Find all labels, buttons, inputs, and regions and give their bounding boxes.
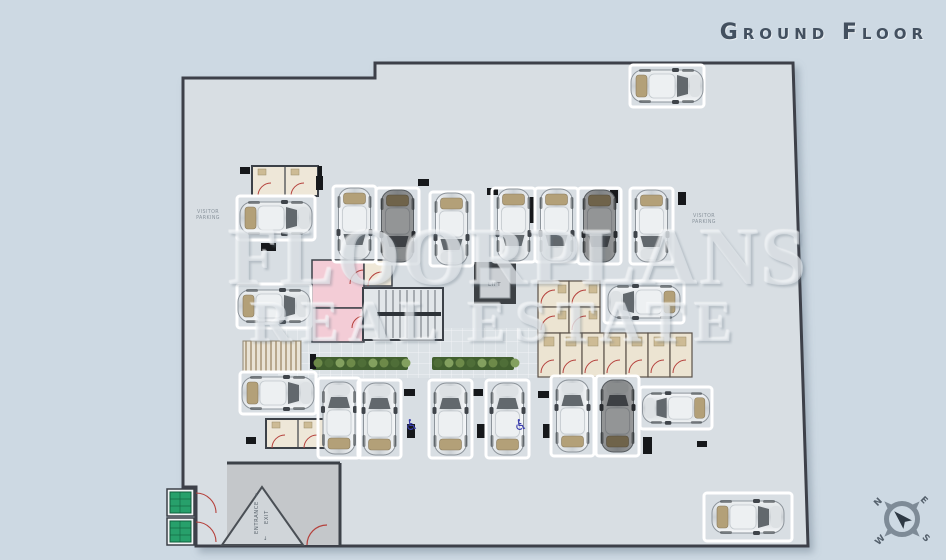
storage-unit	[538, 333, 560, 377]
shrub	[478, 359, 487, 368]
parking-spot	[237, 284, 311, 328]
compass-rose: N E W S	[872, 495, 931, 548]
visitor-parking-label: PARKING	[692, 219, 716, 225]
floor-plan-drawing: ↑ ENTRANCE EXIT ↓	[0, 0, 946, 560]
parking-spot	[376, 188, 419, 264]
shrub	[456, 359, 465, 368]
lift-label: LIFT	[488, 282, 501, 288]
parking-spot	[630, 188, 673, 264]
shrub	[347, 359, 356, 368]
car	[634, 190, 670, 262]
car	[337, 188, 373, 260]
storage-unit	[626, 333, 648, 377]
compass-s: S	[920, 533, 932, 545]
page-title: Ground Floor	[720, 20, 928, 45]
visitor-parking-label: VISITOR	[197, 209, 219, 215]
storage-unit	[538, 281, 569, 307]
shrub	[489, 359, 498, 368]
compass-e: E	[918, 495, 929, 506]
car	[496, 189, 532, 261]
parking-spot	[240, 372, 316, 414]
car	[434, 193, 470, 265]
shrub	[434, 359, 443, 368]
storage-unit	[582, 333, 604, 377]
shrub	[511, 359, 520, 368]
ramp-hatch	[243, 341, 301, 371]
shrub	[325, 359, 334, 368]
arrow-down-icon: ↓	[263, 536, 268, 542]
car	[539, 189, 575, 261]
storage-unit	[569, 281, 600, 307]
parking-spot	[535, 188, 578, 262]
floor-plan-page: Ground Floor FLOORPLANS REAL ESTATE	[0, 0, 946, 560]
car	[240, 200, 312, 236]
shrub	[314, 359, 323, 368]
car	[600, 380, 636, 452]
shrub	[402, 359, 411, 368]
storage-unit	[560, 333, 582, 377]
car	[242, 375, 314, 411]
shrub	[467, 359, 476, 368]
elevator: LIFT	[474, 262, 516, 304]
car	[362, 383, 398, 455]
storage-unit	[604, 333, 626, 377]
parking-spot	[430, 192, 473, 266]
car	[712, 499, 784, 535]
shrub	[369, 359, 378, 368]
car	[380, 190, 416, 262]
car	[555, 380, 591, 452]
car	[631, 68, 703, 104]
wheelchair-icon: ♿	[405, 416, 418, 434]
staircase	[363, 288, 443, 340]
visitor-parking-label: VISITOR	[693, 213, 715, 219]
car	[582, 190, 618, 262]
parking-spot	[630, 65, 704, 107]
parking-spot	[578, 188, 621, 264]
shrub	[500, 359, 509, 368]
pink-room	[312, 260, 364, 308]
storage-unit	[569, 307, 600, 333]
parking-spot	[492, 188, 535, 262]
storage-unit	[648, 333, 670, 377]
parking-spot	[640, 387, 712, 429]
parking-spot	[551, 376, 594, 456]
parking-spot	[237, 196, 315, 240]
car	[321, 382, 357, 454]
parking-spot	[318, 378, 360, 458]
car	[643, 391, 710, 424]
toilets-top	[240, 166, 322, 196]
car	[238, 288, 310, 324]
parking-spot	[604, 281, 684, 323]
storage-unit	[670, 333, 692, 377]
storage-unit	[538, 307, 569, 333]
pink-room	[312, 308, 364, 342]
shrub	[391, 359, 400, 368]
entrance-ramp: ↑ ENTRANCE EXIT ↓	[222, 463, 340, 546]
shrub	[336, 359, 345, 368]
visitor-parking-label: PARKING	[196, 215, 220, 221]
shrub	[358, 359, 367, 368]
parking-spot	[596, 376, 639, 456]
shrub	[380, 359, 389, 368]
shrub	[445, 359, 454, 368]
parking-spot	[429, 380, 472, 458]
compass-n: N	[872, 496, 884, 508]
parking-spot	[333, 186, 376, 262]
car	[608, 284, 680, 320]
arrow-up-icon: ↑	[254, 493, 259, 499]
parking-spot	[358, 380, 401, 458]
wheelchair-icon: ♿	[514, 416, 527, 434]
exit-label: EXIT	[264, 510, 270, 524]
entrance-label: ENTRANCE	[254, 501, 260, 534]
car	[433, 383, 469, 455]
